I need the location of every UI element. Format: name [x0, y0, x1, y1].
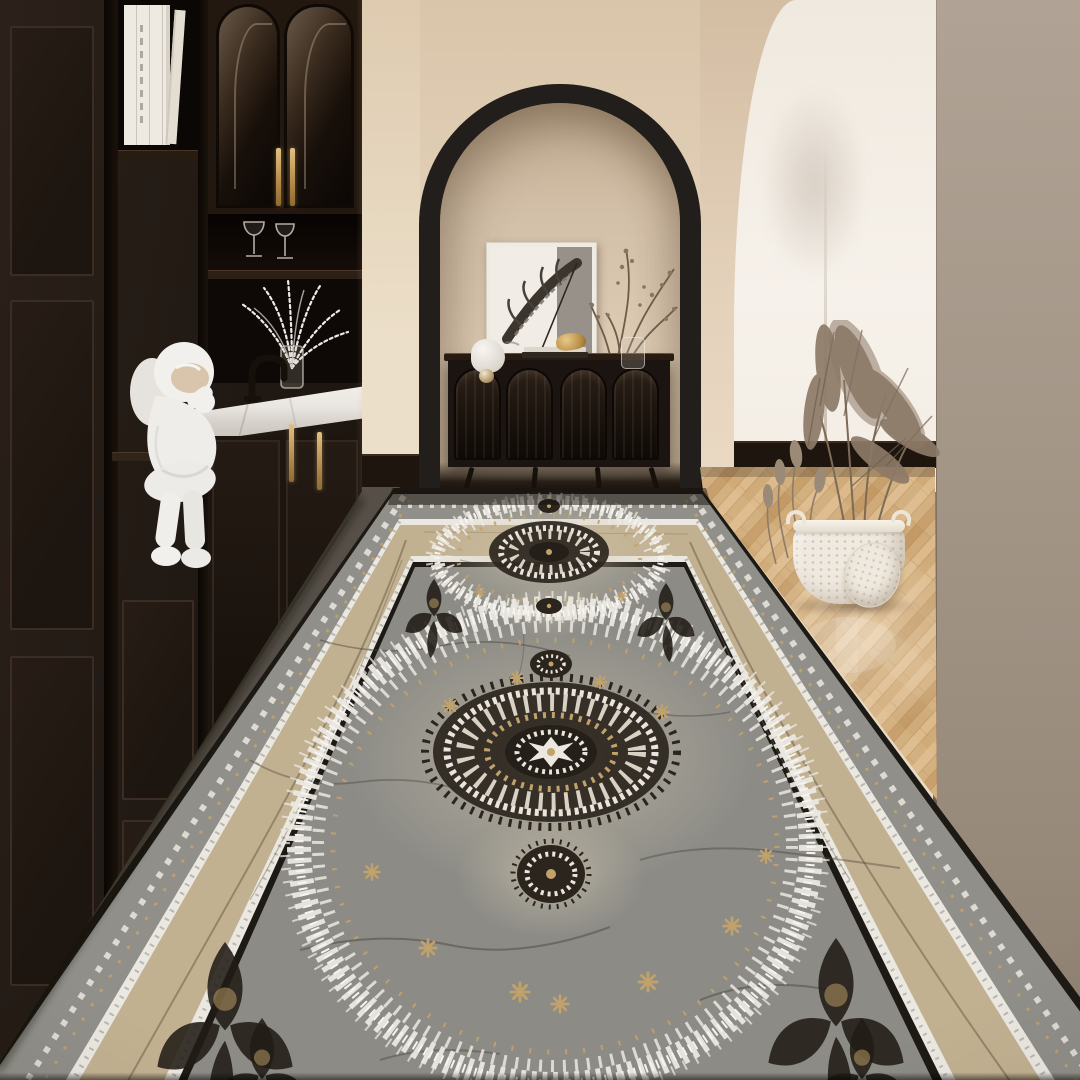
basket-handle [786, 510, 806, 524]
rug-far-medallion [489, 521, 609, 583]
pampas-basket-group [740, 320, 960, 630]
stemmed-glasses [236, 216, 314, 270]
hallway-scene: Hallway interior with dark cabinetry, ar… [0, 0, 1080, 1080]
brass-handle [290, 148, 295, 206]
brass-handle [317, 432, 322, 490]
glasses-shelf [208, 214, 362, 272]
rug-far-shadow [388, 488, 711, 505]
white-books [124, 5, 170, 145]
cabinet-panel [122, 600, 194, 800]
cabinet-panel [10, 26, 94, 276]
basket-rim [793, 520, 905, 532]
black-faucet [240, 344, 300, 406]
brass-handle [276, 148, 281, 206]
astronaut-figurine [122, 330, 226, 570]
arch-reflection [234, 23, 272, 189]
arch-reflection [304, 23, 346, 189]
glass-pane [216, 4, 280, 208]
glass-cabinet [208, 0, 362, 214]
shelf-board [118, 150, 198, 160]
brass-handle [289, 424, 294, 482]
cabinet-panel [10, 300, 94, 630]
